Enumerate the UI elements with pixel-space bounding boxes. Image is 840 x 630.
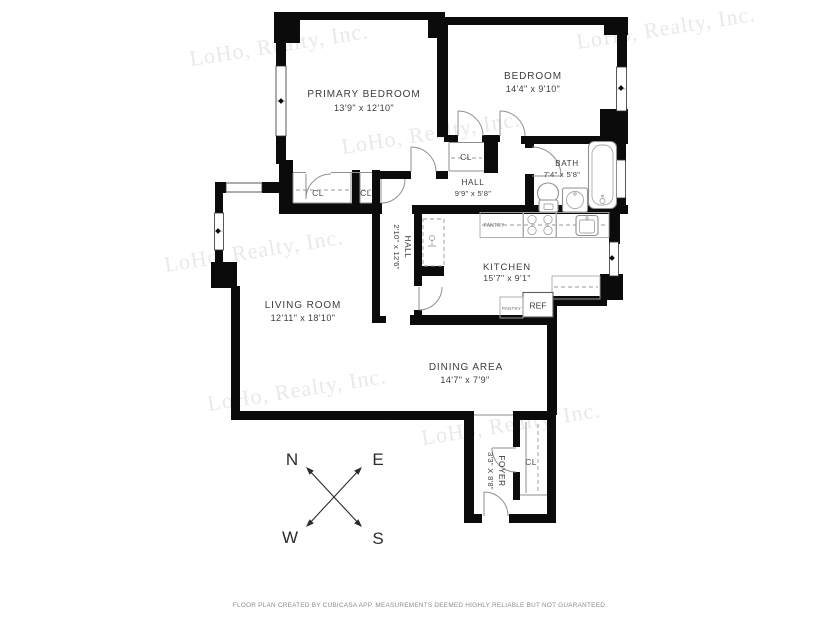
kitchen-cabinet [552,276,600,299]
hall-vertical-name: HALL [403,236,412,259]
hall-vertical-dims: 2'10" x 12'6" [392,224,401,270]
window [226,183,262,192]
watermark: LoHo, Realty, Inc. [163,224,346,277]
compass-south-label: S [372,529,383,548]
room-label-dining-area: DINING AREA [429,362,503,373]
closet-label: CL [312,188,324,198]
bathroom-sink-icon [563,188,588,212]
room-label-primary-bedroom: PRIMARY BEDROOM [307,89,420,100]
room-dims-bath: 7'4" x 5'8" [544,170,581,179]
toilet-icon [538,183,559,212]
pantry-label: PANTRY [502,306,521,311]
room-label-foyer: FOYER 3'3" X 8'8" [486,452,506,490]
room-dims-bedroom: 14'4" x 9'10" [506,84,561,94]
closet-label: CL [525,457,537,467]
floor-plan-canvas: LoHo, Realty, Inc. LoHo, Realty, Inc. Lo… [0,0,840,630]
room-label-kitchen: KITCHEN [483,262,531,273]
pantry-label: PANTRY [483,223,504,229]
closet-label: CL [360,188,372,198]
room-label-bath: BATH [555,159,579,168]
foyer-name: FOYER [497,455,506,486]
room-label-hall-vertical: HALL 2'10" x 12'6" [392,224,412,270]
bathtub-icon [589,142,617,209]
room-dims-hall: 9'9" x 5'8" [455,189,492,198]
watermark: LoHo, Realty, Inc. [420,397,603,450]
entry-door-arc [484,492,508,516]
room-label-bedroom: BEDROOM [504,71,562,82]
compass-icon: N E W S [282,450,384,548]
foyer-dims: 3'3" X 8'8" [486,452,495,490]
compass-west-label: W [282,528,298,547]
footer-disclaimer: FLOOR PLAN CREATED BY CUBICASA APP. MEAS… [233,602,607,609]
room-dims-primary-bedroom: 13'9" x 12'10" [334,103,394,113]
kitchen-sink-icon [576,216,598,236]
floor-plan-page: LoHo, Realty, Inc. LoHo, Realty, Inc. Lo… [0,0,840,630]
refrigerator-label: REF [530,301,547,311]
compass-north-label: N [286,450,298,469]
closet-label: CL [460,152,472,162]
compass-east-label: E [372,450,383,469]
room-label-hall: HALL [462,178,485,187]
kitchen-door-arc [419,287,442,310]
watermark: LoHo, Realty, Inc. [575,1,758,54]
hall-door-arc [381,179,405,203]
primary-bedroom-door-arc [411,147,436,172]
fixtures [480,142,617,319]
room-dims-living-room: 12'11" x 18'10" [271,313,336,323]
room-label-living-room: LIVING ROOM [265,300,342,311]
room-dims-dining-area: 14'7" x 7'9" [440,375,489,385]
room-dims-kitchen: 15'7" x 9'1" [483,273,531,283]
